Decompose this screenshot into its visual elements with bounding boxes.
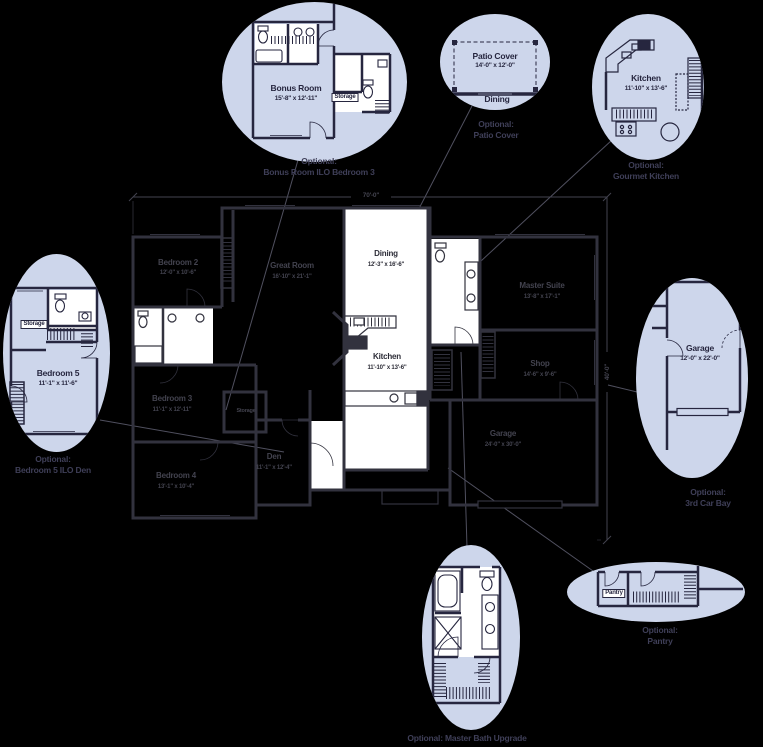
bedroom5-caption: Optional: Bedroom 5 ILO Den — [15, 454, 91, 476]
gourmet-kitchen-label: Kitchen — [631, 74, 661, 83]
room-size-master-suite: 13'-8" x 17'-1" — [524, 294, 560, 300]
patio-cover-size: 14'-0" x 12'-0" — [475, 63, 515, 70]
overall-depth-dimension: 40'-0" — [605, 364, 612, 380]
bonus-storage-label: Storage — [332, 93, 359, 102]
bonus-room-plan — [222, 2, 407, 162]
bonus-room-label: Bonus Room — [271, 84, 322, 93]
callout-master-bath-oval — [422, 545, 520, 730]
patio-caption: Optional: Patio Cover — [473, 119, 518, 141]
bedroom5-plan — [3, 254, 110, 452]
room-label-master-suite: Master Suite — [519, 282, 564, 290]
room-label-bedroom4: Bedroom 4 — [156, 472, 196, 480]
bedroom5-storage-label: Storage — [21, 320, 48, 329]
room-label-dining: Dining — [374, 250, 398, 258]
room-size-kitchen: 11'-10" x 13'-6" — [367, 365, 406, 371]
master-bath-caption: Optional: Master Bath Upgrade — [407, 733, 526, 744]
room-label-bedroom3: Bedroom 3 — [152, 395, 192, 403]
overall-width-dimension: 70'-0" — [363, 193, 379, 200]
room-size-dining: 12'-3" x 16'-6" — [368, 262, 404, 268]
pantry-caption: Optional: Pantry — [642, 625, 678, 647]
room-label-shop: Shop — [530, 360, 549, 368]
patio-cover-label: Patio Cover — [472, 52, 517, 61]
pantry-plan — [567, 562, 745, 622]
callout-pantry-oval — [567, 562, 745, 622]
callout-bonus-room-oval — [222, 2, 407, 162]
room-size-bedroom4: 13'-1" x 10'-4" — [158, 484, 194, 490]
room-label-kitchen: Kitchen — [373, 353, 401, 361]
room-label-storage: Storage — [236, 409, 255, 415]
room-size-den: 11'-1" x 12'-4" — [256, 465, 292, 471]
gourmet-kitchen-size: 11'-10" x 13'-6" — [625, 86, 668, 93]
room-label-bedroom2: Bedroom 2 — [158, 259, 198, 267]
pantry-room-label: Pantry — [602, 589, 625, 598]
car-bay-garage-size: 12'-0" x 22'-0" — [680, 356, 720, 363]
bonus-caption: Optional: Bonus Room ILO Bedroom 3 — [263, 156, 374, 178]
patio-dining-label: Dining — [484, 95, 509, 104]
gourmet-caption: Optional: Gourmet Kitchen — [613, 160, 679, 182]
callout-3rd-car-bay-oval — [636, 278, 748, 478]
bedroom5-label: Bedroom 5 — [37, 369, 80, 378]
floor-plan-options-diagram: Bedroom 2 12'-0" x 10'-6" Great Room 16'… — [0, 0, 763, 747]
room-label-den: Den — [267, 453, 282, 461]
room-size-bedroom3: 11'-1" x 12'-11" — [153, 407, 192, 413]
room-label-great-room: Great Room — [270, 262, 314, 270]
room-size-shop: 14'-6" x 9'-6" — [523, 372, 556, 378]
room-label-garage: Garage — [490, 430, 516, 438]
room-size-garage: 24'-0" x 30'-0" — [485, 442, 521, 448]
master-bath-plan — [422, 545, 520, 730]
car-bay-caption: Optional: 3rd Car Bay — [685, 487, 731, 509]
bonus-room-size: 15'-8" x 12'-11" — [275, 96, 318, 103]
callout-bedroom5-oval — [3, 254, 110, 452]
car-bay-garage-label: Garage — [686, 344, 714, 353]
third-car-bay-plan — [636, 278, 748, 478]
room-size-great-room: 16'-10" x 21'-1" — [272, 274, 311, 280]
room-size-bedroom2: 12'-0" x 10'-6" — [160, 270, 196, 276]
bedroom5-size: 11'-1" x 11'-6" — [39, 381, 78, 388]
